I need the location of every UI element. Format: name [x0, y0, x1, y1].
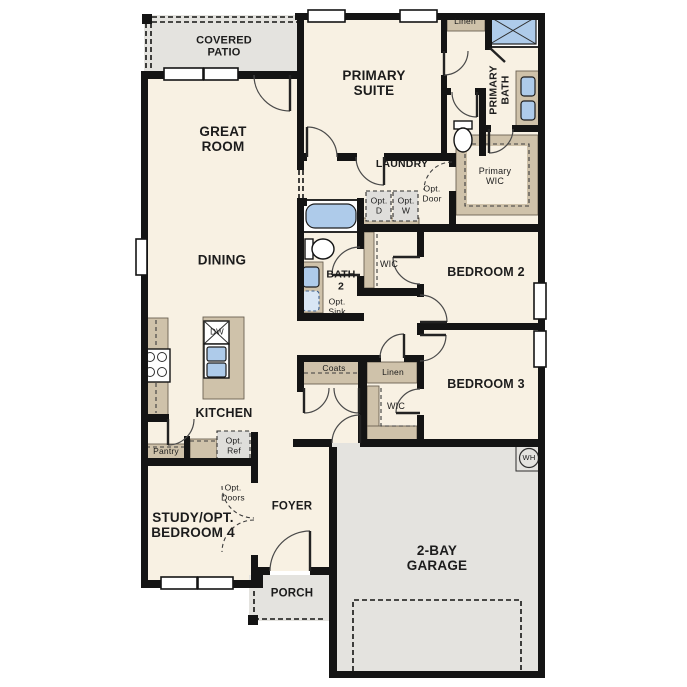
window — [198, 577, 233, 589]
label-foyer: FOYER — [272, 501, 313, 514]
label-linen-hall: Linen — [382, 368, 404, 378]
label-water-heater: WH — [523, 454, 536, 462]
label-opt-dryer: Opt. D — [371, 196, 388, 215]
bath2-toilet-icon — [305, 239, 334, 259]
floor-plan-drawing — [0, 0, 687, 687]
label-laundry: LAUNDRY — [376, 159, 428, 171]
kitchen-sink-icon — [204, 344, 229, 378]
primary-sink-2 — [521, 101, 535, 120]
window — [308, 10, 345, 22]
bath2-sink — [303, 267, 319, 287]
window — [204, 68, 238, 80]
label-opt-washer: Opt. W — [398, 196, 415, 215]
counter-by-ref — [190, 439, 217, 461]
primary-sink-1 — [521, 77, 535, 96]
label-pantry: Pantry — [153, 447, 179, 457]
wic2-shelf — [364, 232, 374, 288]
label-bath-2: BATH 2 — [326, 269, 355, 293]
window — [136, 239, 147, 275]
label-wic-2: WIC — [380, 259, 398, 269]
label-bedroom-2: BEDROOM 2 — [447, 265, 525, 279]
label-study: STUDY/OPT. BEDROOM 4 — [151, 510, 235, 540]
porch-column — [248, 615, 258, 625]
window — [534, 283, 546, 319]
wic3-shelf-bottom — [367, 426, 417, 440]
bath2-opt-sink — [303, 291, 319, 311]
label-linen-top: Linen — [454, 17, 476, 27]
label-primary-wic: Primary WIC — [479, 166, 511, 186]
label-opt-sink: Opt. Sink — [328, 297, 345, 316]
label-coats: Coats — [322, 364, 345, 374]
label-porch: PORCH — [271, 588, 314, 601]
label-covered-patio: COVERED PATIO — [196, 35, 252, 60]
floor-plan: COVERED PATIO GREAT ROOM PRIMARY SUITE P… — [0, 0, 687, 687]
window — [164, 68, 203, 80]
label-opt-doors: Opt. Doors — [221, 483, 245, 502]
label-garage: 2-BAY GARAGE — [407, 543, 467, 573]
label-opt-ref: Opt. Ref — [226, 436, 243, 455]
label-kitchen: KITCHEN — [196, 406, 253, 420]
window — [534, 331, 546, 367]
primary-toilet-icon — [454, 121, 472, 152]
window — [400, 10, 437, 22]
label-primary-bath: PRIMARY BATH — [488, 65, 512, 114]
label-dishwasher: DW — [210, 329, 224, 338]
label-great-room: GREAT ROOM — [199, 124, 246, 154]
label-dining: DINING — [198, 252, 246, 267]
window — [161, 577, 197, 589]
label-wic-3: WIC — [387, 401, 405, 411]
label-primary-suite: PRIMARY SUITE — [342, 68, 405, 98]
patio-column — [142, 14, 152, 24]
label-opt-door: Opt. Door — [422, 184, 441, 203]
label-bedroom-3: BEDROOM 3 — [447, 377, 525, 391]
